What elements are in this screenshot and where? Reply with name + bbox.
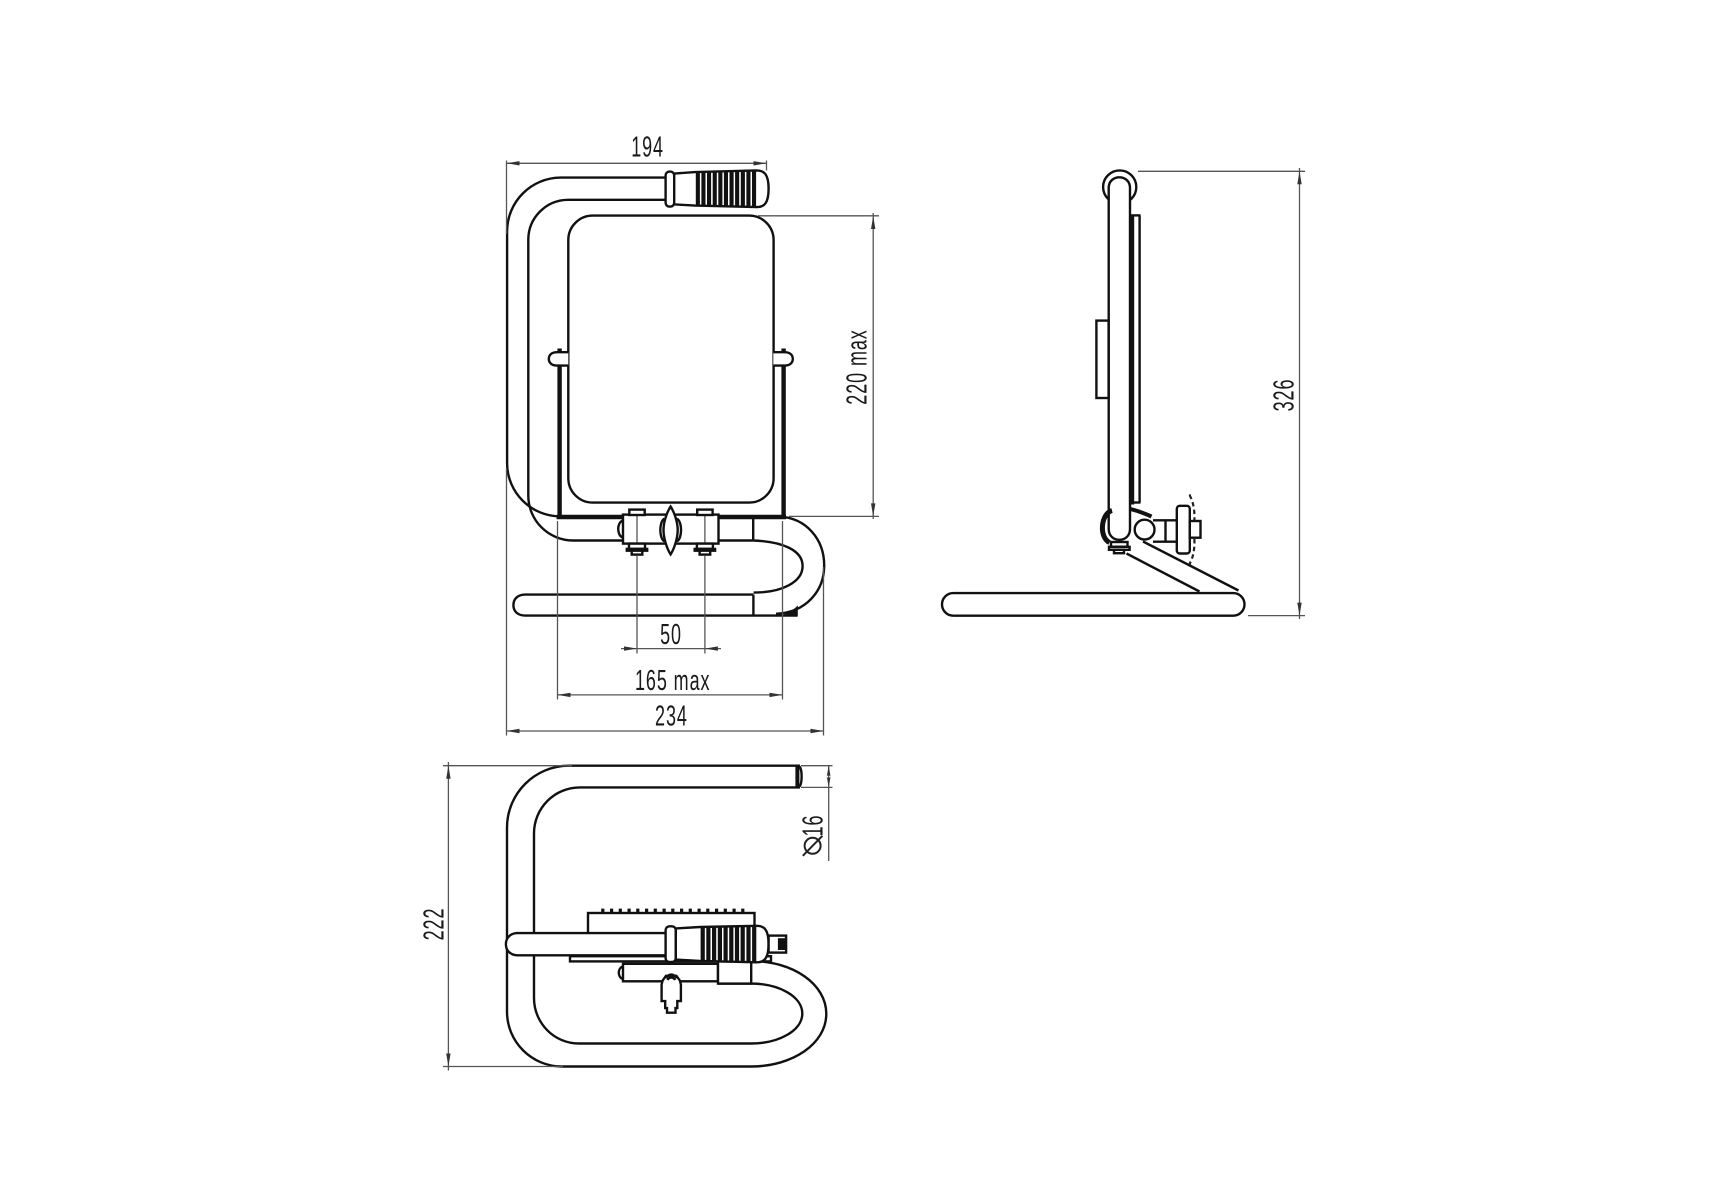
svg-text:50: 50 bbox=[660, 619, 682, 651]
svg-text:222: 222 bbox=[418, 908, 450, 941]
svg-text:220 max: 220 max bbox=[841, 329, 873, 404]
svg-text:234: 234 bbox=[655, 700, 688, 732]
svg-text:16: 16 bbox=[797, 815, 829, 837]
svg-text:194: 194 bbox=[631, 131, 664, 163]
svg-text:165 max: 165 max bbox=[635, 665, 710, 697]
svg-text:326: 326 bbox=[1268, 379, 1300, 412]
